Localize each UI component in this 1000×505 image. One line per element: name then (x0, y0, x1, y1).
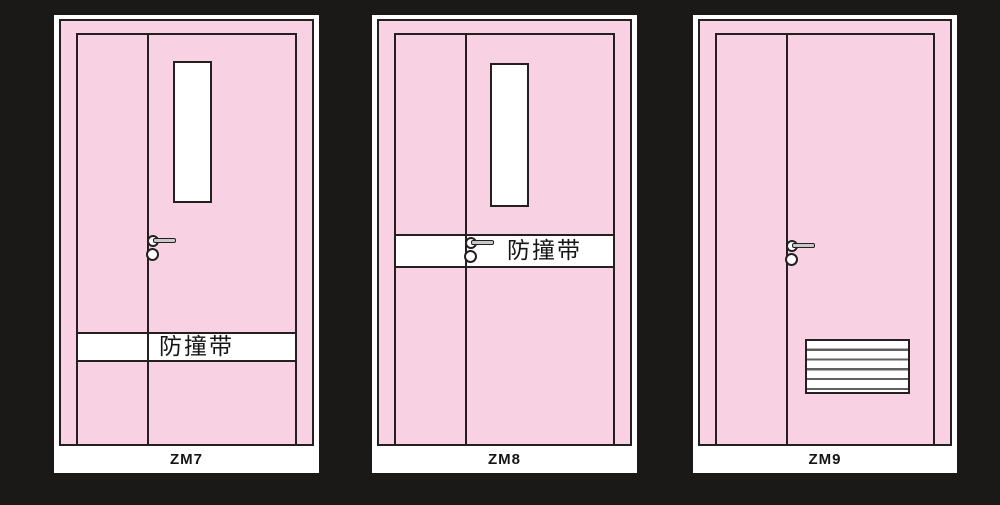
bump-band-label: 防撞带 (159, 334, 234, 360)
vision-panel (490, 63, 529, 207)
door-leaves (715, 33, 935, 444)
lock-cylinder-icon (146, 248, 159, 261)
door-handle-icon (465, 237, 511, 265)
door-unit-zm9: ZM9 (693, 15, 957, 473)
handle-lever-icon (792, 243, 815, 248)
lock-cylinder-icon (785, 253, 798, 266)
vision-panel (173, 61, 212, 203)
door-handle-icon (147, 235, 193, 263)
door-unit-zm8: 防撞带 ZM8 (372, 15, 637, 473)
door-unit-zm7: 防撞带 ZM7 (54, 15, 319, 473)
lock-cylinder-icon (464, 250, 477, 263)
door-frame (698, 19, 952, 446)
door-handle-icon (786, 240, 832, 268)
bump-band-label: 防撞带 (507, 236, 582, 266)
handle-lever-icon (471, 240, 494, 245)
door-label: ZM8 (372, 446, 637, 473)
door-label: ZM7 (54, 446, 319, 473)
door-label: ZM9 (693, 446, 957, 473)
door-frame: 防撞带 (377, 19, 632, 446)
door-leaves: 防撞带 (394, 33, 615, 444)
handle-lever-icon (153, 238, 176, 243)
door-leaves: 防撞带 (76, 33, 297, 444)
door-frame: 防撞带 (59, 19, 314, 446)
louver-vent-icon (805, 339, 910, 394)
